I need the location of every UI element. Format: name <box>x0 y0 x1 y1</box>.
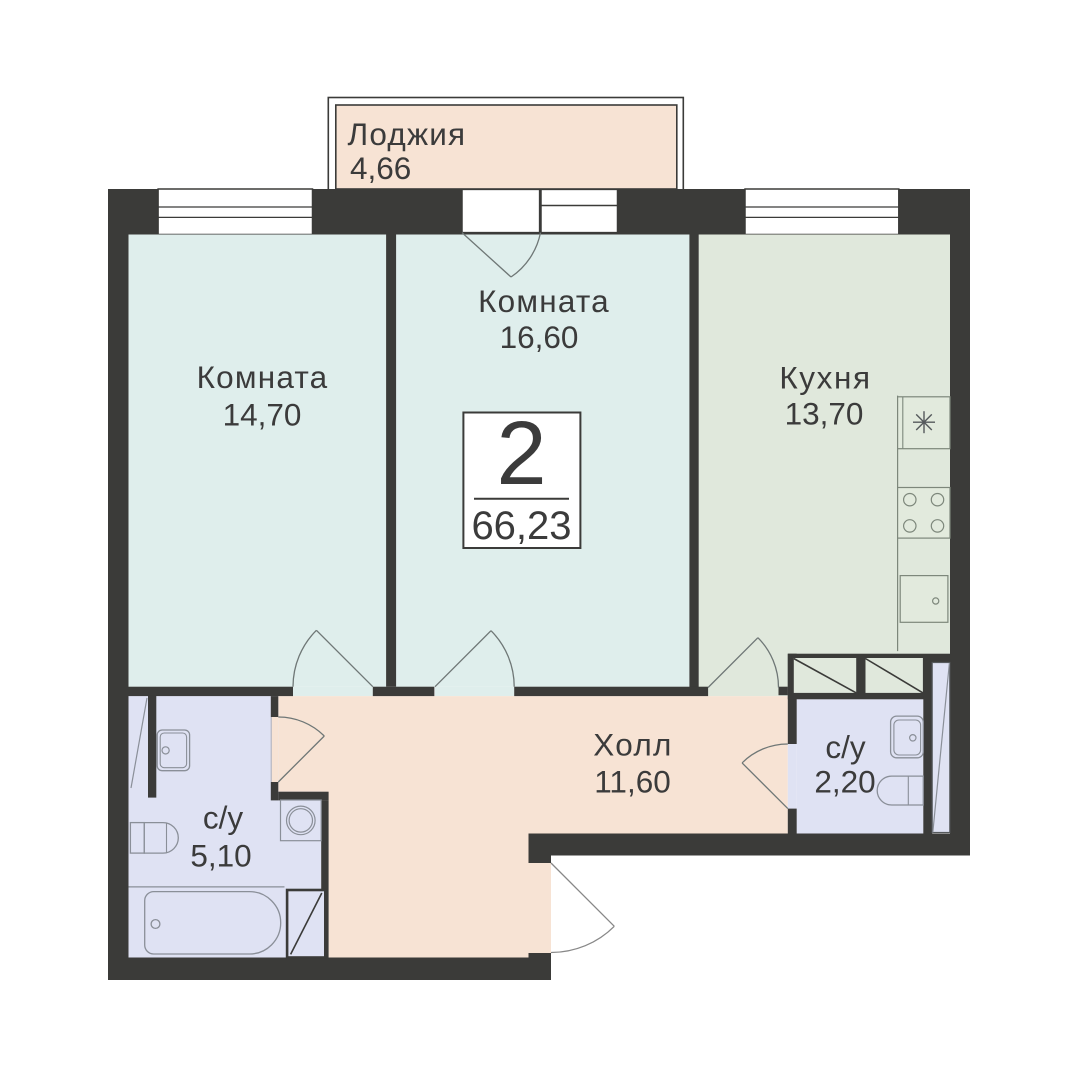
svg-text:4,66: 4,66 <box>350 150 411 186</box>
svg-text:14,70: 14,70 <box>223 397 302 433</box>
svg-text:Комната: Комната <box>478 283 610 319</box>
svg-text:2: 2 <box>496 404 546 504</box>
svg-text:Лоджия: Лоджия <box>348 116 467 152</box>
svg-text:Кухня: Кухня <box>779 360 871 396</box>
svg-text:11,60: 11,60 <box>594 764 671 800</box>
svg-text:Холл: Холл <box>593 727 672 763</box>
svg-text:Комната: Комната <box>197 359 329 395</box>
svg-text:13,70: 13,70 <box>785 396 864 432</box>
svg-text:2,20: 2,20 <box>814 763 875 799</box>
svg-text:с/у: с/у <box>203 799 244 835</box>
svg-text:5,10: 5,10 <box>190 838 251 874</box>
svg-text:66,23: 66,23 <box>471 504 571 548</box>
svg-text:с/у: с/у <box>825 729 866 765</box>
svg-text:16,60: 16,60 <box>500 319 579 355</box>
